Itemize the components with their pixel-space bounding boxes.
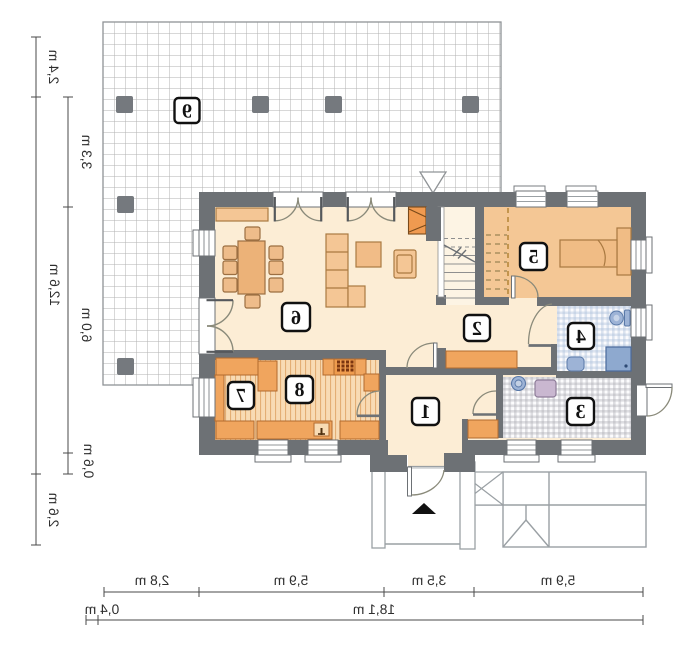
svg-text:4: 4 (576, 326, 586, 348)
svg-text:6: 6 (291, 307, 301, 329)
svg-text:6,0 m: 6,0 m (79, 308, 94, 343)
svg-text:9: 9 (182, 101, 192, 123)
svg-text:3,3 m: 3,3 m (79, 135, 94, 170)
svg-text:7: 7 (236, 385, 246, 407)
svg-text:3: 3 (576, 401, 586, 423)
svg-text:5,9 m: 5,9 m (274, 573, 309, 588)
svg-text:0,6 m: 0,6 m (81, 444, 96, 479)
svg-text:2: 2 (472, 318, 482, 340)
svg-text:1: 1 (421, 401, 431, 423)
svg-text:2,6 m: 2,6 m (46, 493, 61, 528)
svg-text:18,1 m: 18,1 m (353, 602, 395, 617)
svg-text:5: 5 (529, 246, 539, 268)
svg-text:2,4 m: 2,4 m (46, 50, 61, 85)
svg-text:5,9 m: 5,9 m (541, 573, 576, 588)
svg-text:12,6 m: 12,6 m (47, 264, 62, 306)
svg-text:2,8 m: 2,8 m (135, 573, 170, 588)
svg-text:8: 8 (295, 379, 305, 401)
svg-text:3,5 m: 3,5 m (412, 573, 447, 588)
svg-text:0,4 m: 0,4 m (85, 602, 120, 617)
